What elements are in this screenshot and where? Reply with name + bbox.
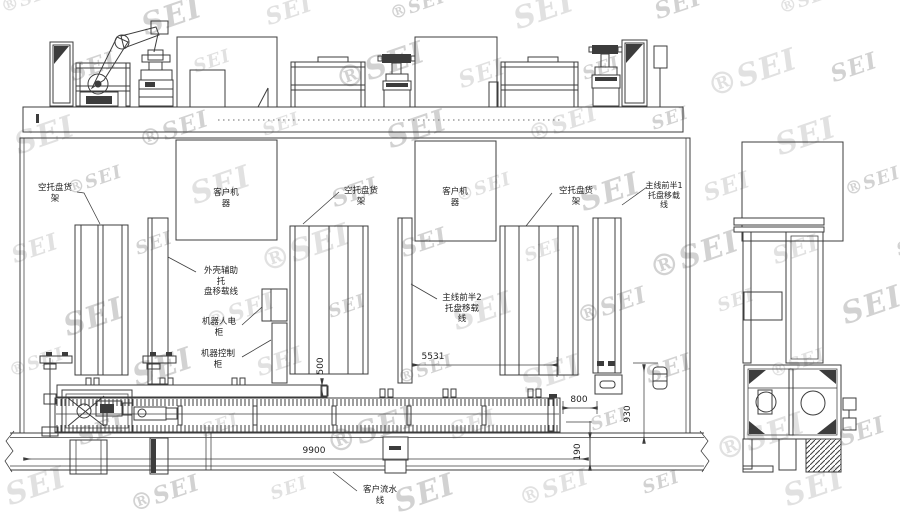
label-line: 机器人电 bbox=[194, 317, 244, 328]
label-line: 柜 bbox=[193, 360, 243, 371]
main-conveyor bbox=[55, 389, 560, 432]
label-customer-flow-line: 客户流水 线 bbox=[354, 485, 406, 506]
dimension-5531: 5531 bbox=[416, 352, 450, 362]
label-line: 托 bbox=[196, 277, 246, 288]
label-line: 器 bbox=[206, 199, 246, 210]
label-line: 托盘移载 bbox=[436, 304, 488, 315]
label-line: 客户机 bbox=[206, 188, 246, 199]
under-conveyor-machine bbox=[383, 437, 408, 473]
label-line: 客户机 bbox=[435, 187, 475, 198]
customer-flow-line-band bbox=[5, 431, 709, 474]
label-mainline-front-half-1: 主线前半1 托盘移载 线 bbox=[638, 181, 690, 210]
engineering-drawing: ®SEISEISEI®SEISEISEI®SEISEISEISEI®SEISEI… bbox=[0, 0, 900, 515]
leader-lines bbox=[77, 187, 647, 491]
pallet-rack-plan-1 bbox=[75, 225, 128, 375]
side-legs bbox=[743, 439, 841, 472]
elevation-view bbox=[23, 21, 683, 132]
dimension-930: 930 bbox=[623, 401, 633, 427]
mainline-2-column bbox=[398, 218, 412, 383]
dimension-800: 800 bbox=[566, 395, 592, 405]
label-machine-control-cabinet: 机器控制 柜 bbox=[193, 349, 243, 370]
dimension-9900: 9900 bbox=[296, 446, 332, 456]
label-robot-cabinet: 机器人电 柜 bbox=[194, 317, 244, 338]
plan-view bbox=[20, 138, 690, 433]
side-machine-box bbox=[744, 365, 841, 439]
side-attachments bbox=[843, 398, 856, 430]
label-line: 空托盘货 bbox=[336, 186, 386, 197]
label-line: 器 bbox=[435, 198, 475, 209]
machine-control-cabinet-box bbox=[272, 323, 287, 383]
label-line: 架 bbox=[551, 197, 601, 208]
side-view bbox=[734, 142, 856, 472]
label-line: 客户流水 bbox=[354, 485, 406, 496]
label-mainline-front-half-2: 主线前半2 托盘移载 线 bbox=[436, 293, 488, 325]
pallet-rack-plan-3 bbox=[500, 226, 578, 375]
label-line: 外壳辅助 bbox=[196, 266, 246, 277]
customer-machine-elevation-2 bbox=[415, 37, 498, 107]
cad-linework bbox=[0, 0, 900, 515]
pallet-rack-plan-2 bbox=[290, 226, 368, 374]
label-line: 空托盘货 bbox=[551, 186, 601, 197]
label-line: 架 bbox=[30, 194, 80, 205]
label-line: 线 bbox=[638, 200, 690, 210]
label-customer-machine-2: 客户机 器 bbox=[435, 187, 475, 208]
label-line: 柜 bbox=[194, 328, 244, 339]
pill-device bbox=[653, 367, 667, 389]
robot-electric-cabinet-box bbox=[262, 289, 287, 321]
label-line: 机器控制 bbox=[193, 349, 243, 360]
transfer-rail bbox=[40, 352, 328, 437]
dimension-190: 190 bbox=[573, 439, 583, 465]
label-customer-machine-1: 客户机 器 bbox=[206, 188, 246, 209]
label-empty-pallet-rack-1: 空托盘货 架 bbox=[30, 183, 80, 204]
shell-aux-column bbox=[148, 218, 168, 384]
dimension-500: 500 bbox=[316, 353, 326, 379]
band-support-1 bbox=[70, 440, 107, 474]
door-panel-1 bbox=[50, 42, 73, 106]
mainline-1-column bbox=[593, 218, 621, 373]
shelf-unit-3 bbox=[501, 57, 578, 107]
label-line: 托盘移载 bbox=[638, 191, 690, 201]
band-support-2 bbox=[150, 438, 168, 474]
lifter-robot-3 bbox=[589, 45, 622, 106]
customer-machine-elevation-1 bbox=[177, 37, 277, 107]
support-pole-1 bbox=[40, 352, 72, 437]
label-shell-aux-line: 外壳辅助 托 盘移载线 bbox=[196, 266, 246, 298]
label-line: 主线前半1 bbox=[638, 181, 690, 191]
label-empty-pallet-rack-3: 空托盘货 架 bbox=[551, 186, 601, 207]
shelf-unit-2 bbox=[291, 57, 365, 107]
sign-post bbox=[654, 46, 667, 107]
label-line: 线 bbox=[436, 314, 488, 325]
lifter-robot-2 bbox=[378, 54, 415, 107]
scanner-box bbox=[595, 375, 622, 394]
door-panel-2 bbox=[622, 40, 647, 106]
label-line: 主线前半2 bbox=[436, 293, 488, 304]
label-line: 空托盘货 bbox=[30, 183, 80, 194]
label-line: 架 bbox=[336, 197, 386, 208]
label-line: 盘移载线 bbox=[196, 287, 246, 298]
label-empty-pallet-rack-2: 空托盘货 架 bbox=[336, 186, 386, 207]
press-machine-1 bbox=[139, 55, 173, 106]
label-line: 线 bbox=[354, 496, 406, 507]
